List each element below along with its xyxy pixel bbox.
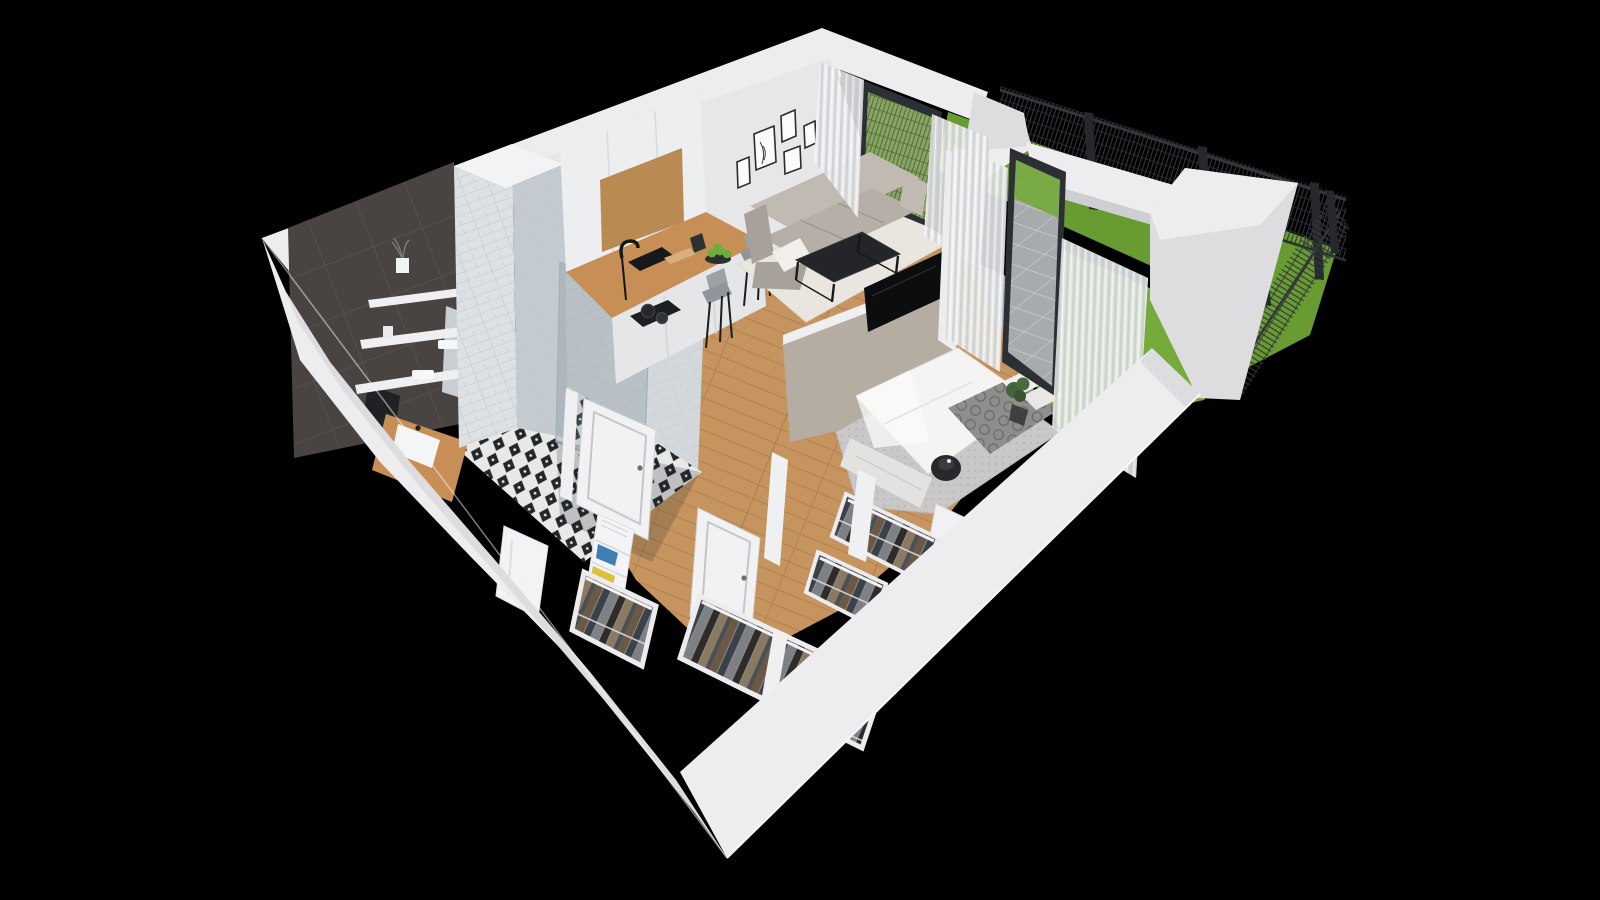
shelf-towels — [438, 340, 460, 349]
door-handle — [637, 465, 642, 470]
curtain-folds — [946, 146, 1008, 372]
art-frame — [754, 126, 776, 170]
art-frame — [737, 157, 750, 188]
green-apple — [713, 243, 721, 251]
pot-on-stove — [642, 305, 655, 318]
plant-leaves — [1014, 390, 1026, 402]
pot-on-stove — [657, 313, 668, 324]
door-handle — [741, 575, 746, 580]
plant-leaves — [1017, 378, 1030, 391]
sofa-chaise-front — [752, 262, 808, 290]
shelf-candle — [383, 326, 393, 338]
art-frame — [784, 146, 801, 174]
apartment-3d-render — [0, 0, 1600, 900]
sink-faucet-dot — [415, 425, 420, 430]
apartment-render-canvas — [0, 0, 1600, 900]
art-frame — [804, 121, 816, 148]
green-apple — [723, 250, 731, 258]
art-frame — [781, 110, 796, 142]
shelf-towels — [412, 370, 434, 379]
tile-column-left-grout — [454, 144, 517, 448]
pendant-highlight — [947, 459, 951, 463]
pendant-inner — [938, 458, 954, 470]
shelf-plant-pot — [396, 258, 409, 273]
